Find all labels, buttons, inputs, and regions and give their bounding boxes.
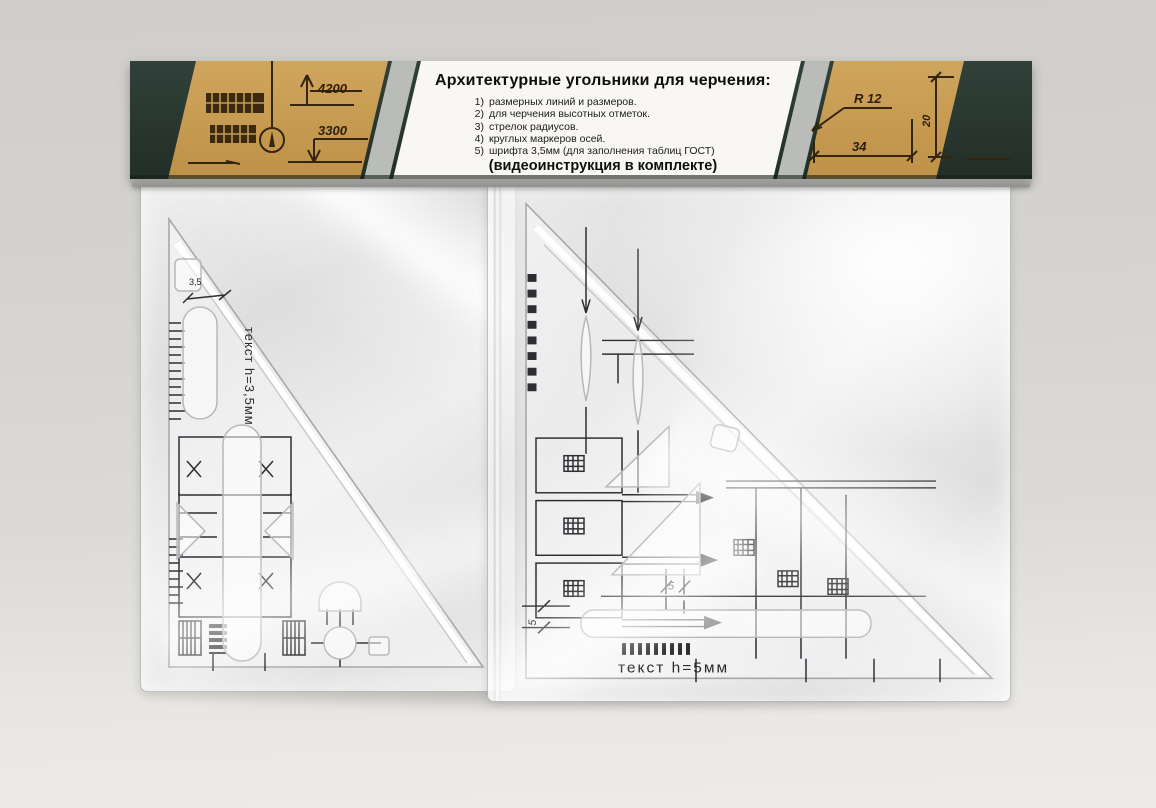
feature-item: 2) для черчения высотных отметок. bbox=[470, 108, 770, 120]
cutout-square bbox=[369, 637, 389, 655]
feature-number: 4) bbox=[470, 133, 484, 145]
cutout-slot-center bbox=[223, 425, 261, 661]
feature-text: стрелок радиусов. bbox=[489, 121, 579, 133]
feature-item: 1) размерных линий и размеров. bbox=[470, 96, 770, 108]
feature-number: 2) bbox=[470, 108, 484, 120]
product-photo-stage: 3,5 текст h=3,5мм bbox=[0, 0, 1156, 808]
feature-item: 3) стрелок радиусов. bbox=[470, 121, 770, 133]
plastic-bag-right: 5 5 текст h=5мм bbox=[487, 183, 1011, 702]
large-triangle-text-label: текст h=5мм bbox=[618, 660, 729, 677]
triangle-ruler-large: 5 5 текст h=5мм bbox=[506, 192, 1006, 692]
small-triangle-dim-label: 3,5 bbox=[189, 277, 202, 287]
feature-text: шрифта 3,5мм (для заполнения таблиц ГОСТ… bbox=[489, 145, 715, 157]
cutout-slot-long bbox=[581, 610, 871, 637]
cutout-pill-small bbox=[183, 307, 217, 419]
card-bottom-edge bbox=[130, 175, 1032, 179]
header-card: R 12 34 20 4200 3300 Архитектурные уголь… bbox=[130, 61, 1032, 179]
large-triangle-dim-left: 5 bbox=[527, 619, 539, 626]
feature-text: круглых маркеров осей. bbox=[489, 133, 605, 145]
small-triangle-text-label: текст h=3,5мм bbox=[242, 327, 257, 426]
feature-text: для черчения высотных отметок. bbox=[489, 108, 650, 120]
cutout-diamond bbox=[709, 424, 740, 453]
feature-list: 1) размерных линий и размеров. 2) для че… bbox=[470, 96, 770, 157]
feature-number: 3) bbox=[470, 121, 484, 133]
radius-dim-label: R 12 bbox=[854, 91, 882, 106]
feature-item: 4) круглых маркеров осей. bbox=[470, 133, 770, 145]
product-title: Архитектурные угольники для черчения: bbox=[422, 72, 784, 90]
cutout-circle-axis bbox=[324, 627, 356, 659]
bag-seam-edge bbox=[494, 184, 501, 701]
plastic-bag-left: 3,5 текст h=3,5мм bbox=[140, 180, 516, 692]
large-triangle-body bbox=[526, 204, 992, 679]
width-dim-label: 34 bbox=[852, 139, 867, 154]
feature-number: 5) bbox=[470, 145, 484, 157]
video-instruction-note: (видеоинструкция в комплекте) bbox=[422, 158, 784, 174]
height-dim-label: 20 bbox=[921, 114, 933, 128]
feature-text: размерных линий и размеров. bbox=[489, 96, 637, 108]
feature-number: 1) bbox=[470, 96, 484, 108]
feature-item: 5) шрифта 3,5мм (для заполнения таблиц Г… bbox=[470, 145, 770, 157]
elevation-bottom-label: 3300 bbox=[318, 123, 348, 138]
triangle-ruler-small: 3,5 текст h=3,5мм bbox=[153, 201, 493, 681]
large-triangle-dim-center: 5 bbox=[668, 581, 675, 593]
elevation-top-label: 4200 bbox=[317, 81, 348, 96]
